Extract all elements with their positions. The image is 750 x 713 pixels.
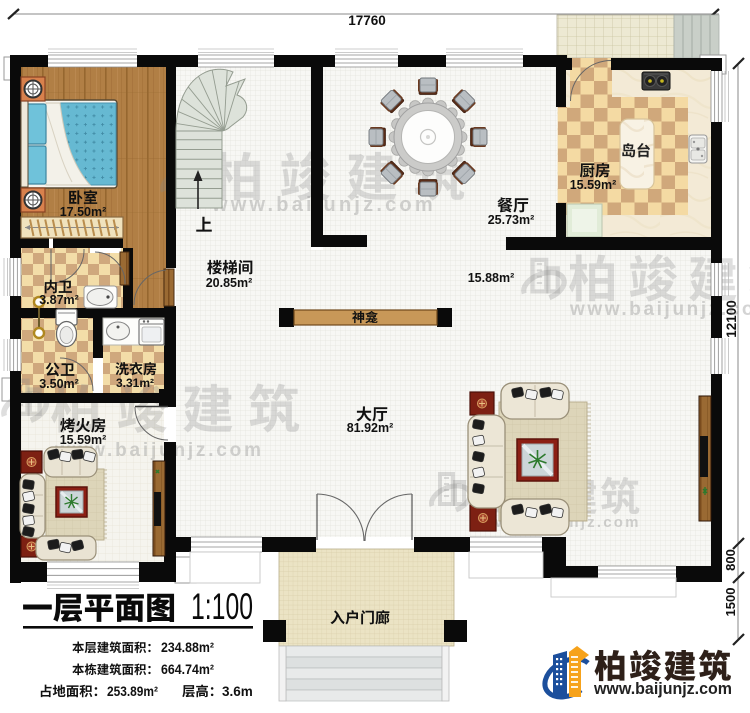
svg-text:20.85m²: 20.85m²	[206, 276, 253, 290]
svg-text:664.74m²: 664.74m²	[161, 662, 214, 677]
svg-text:www.baijunjz.com: www.baijunjz.com	[593, 679, 732, 698]
svg-text:3.31m²: 3.31m²	[116, 376, 154, 390]
svg-text:81.92m²: 81.92m²	[347, 421, 394, 435]
svg-text:15.59m²: 15.59m²	[60, 433, 107, 447]
svg-text:3.87m²: 3.87m²	[39, 293, 79, 307]
svg-text:800: 800	[723, 549, 738, 571]
svg-text:15.59m²: 15.59m²	[570, 178, 617, 192]
svg-text:253.89m²: 253.89m²	[107, 684, 158, 699]
svg-text:www.baijunjz.com: www.baijunjz.com	[569, 299, 750, 320]
svg-text:1:100: 1:100	[191, 586, 253, 627]
svg-text:1500: 1500	[723, 588, 738, 617]
svg-text:3.50m²: 3.50m²	[39, 377, 79, 391]
svg-text:15.88m²: 15.88m²	[468, 271, 515, 285]
svg-text:17760: 17760	[348, 13, 386, 28]
svg-text:www.baijunjz.com: www.baijunjz.com	[211, 194, 436, 216]
svg-text:234.88m²: 234.88m²	[161, 640, 214, 655]
svg-text:17.50m²: 17.50m²	[60, 205, 107, 219]
svg-text:3.6m: 3.6m	[222, 684, 253, 699]
svg-text:25.73m²: 25.73m²	[488, 213, 535, 227]
